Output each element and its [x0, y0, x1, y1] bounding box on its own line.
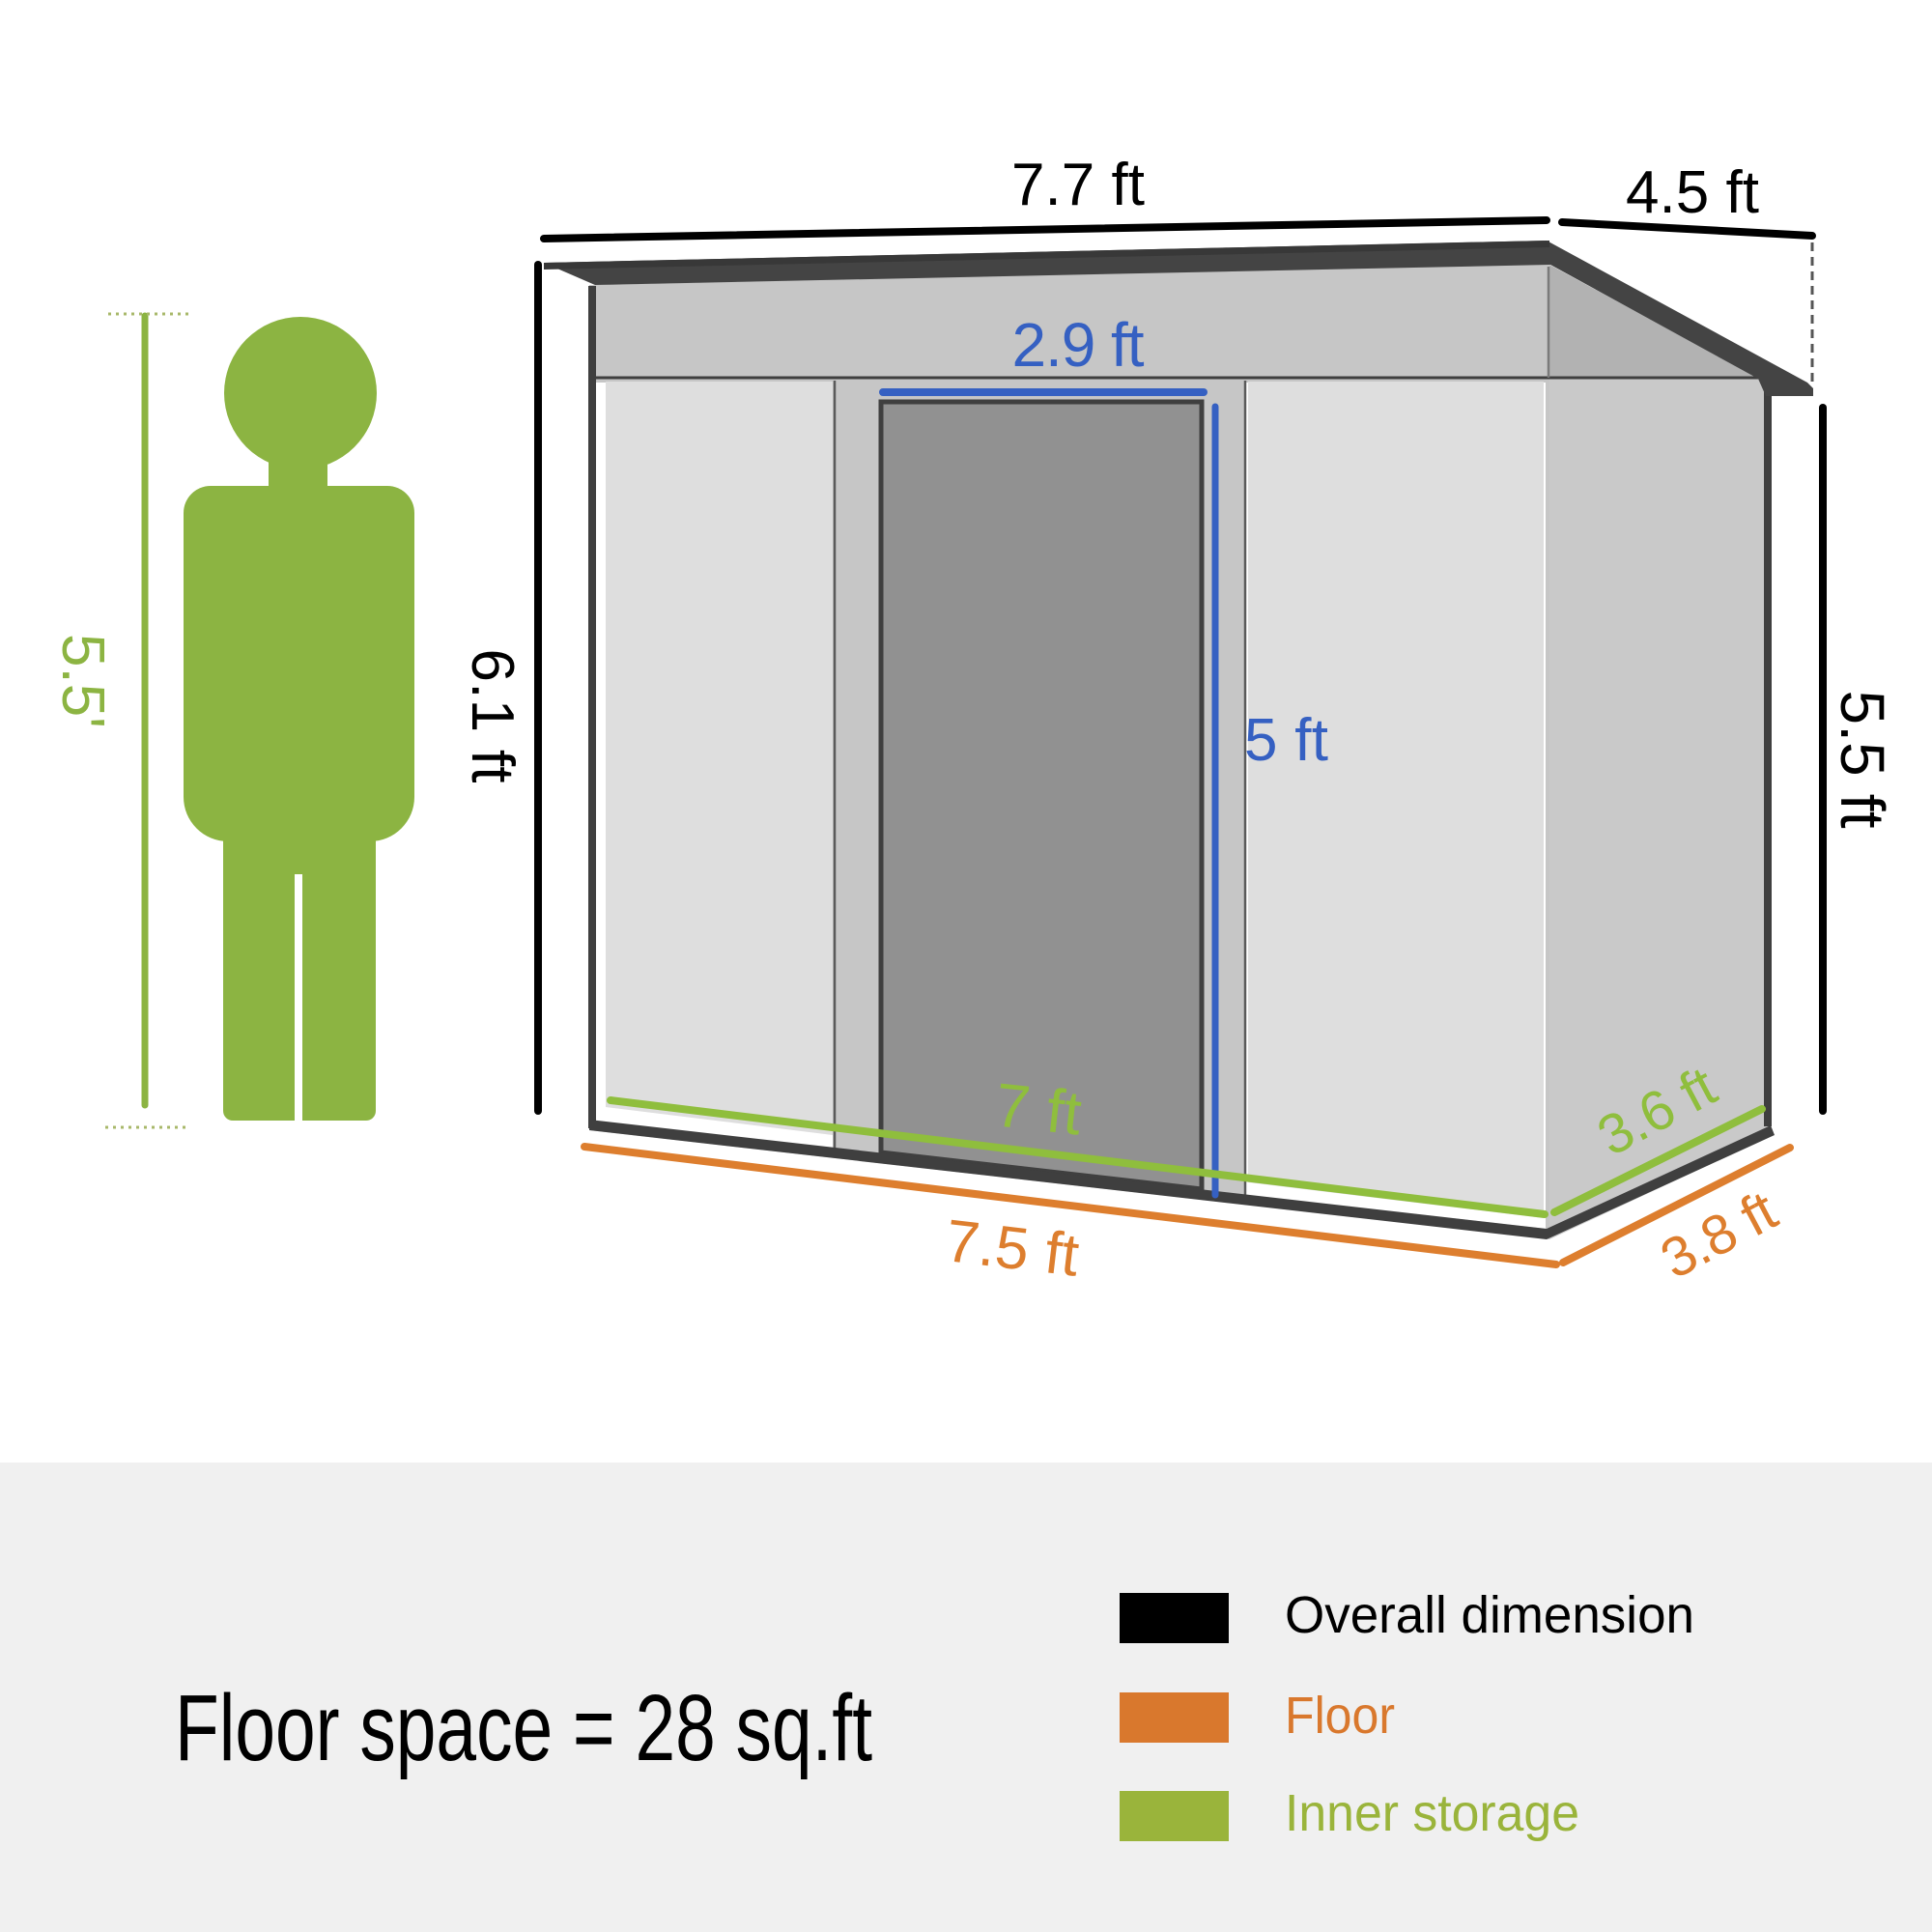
svg-text:2.9 ft: 2.9 ft — [1012, 310, 1145, 380]
svg-text:5 ft: 5 ft — [1244, 707, 1328, 774]
svg-text:7.7 ft: 7.7 ft — [1011, 152, 1145, 218]
svg-text:5.5': 5.5' — [49, 634, 116, 728]
svg-text:Floor space = 28 sq.ft: Floor space = 28 sq.ft — [175, 1675, 872, 1780]
svg-text:7 ft: 7 ft — [992, 1069, 1085, 1148]
svg-text:6.1 ft: 6.1 ft — [459, 649, 526, 783]
svg-text:5.5 ft: 5.5 ft — [1828, 691, 1897, 829]
svg-text:Overall dimension: Overall dimension — [1285, 1586, 1694, 1644]
svg-text:Inner storage: Inner storage — [1285, 1784, 1579, 1842]
svg-text:4.5 ft: 4.5 ft — [1626, 159, 1759, 226]
svg-text:Floor: Floor — [1285, 1687, 1395, 1745]
